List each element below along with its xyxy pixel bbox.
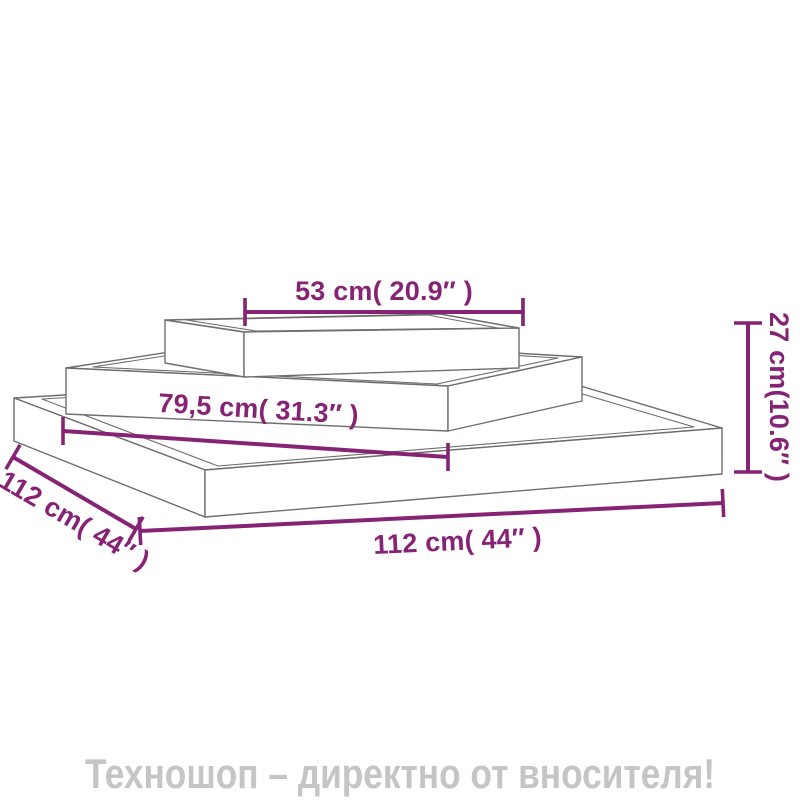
footer-watermark: Техношоп – директно от вносителя! [85,750,715,797]
label-top-width: 53 cm( 20.9″ ) [295,276,473,306]
label-bottom-width: 112 cm( 44″ ) [373,522,543,560]
planter-dimension-diagram: 53 cm( 20.9″ ) 79,5 cm( 31.3″ ) 112 cm( … [0,0,800,800]
product-image: 53 cm( 20.9″ ) 79,5 cm( 31.3″ ) 112 cm( … [0,0,800,800]
dim-right-height [734,323,762,472]
tier-top-front-right-face [244,328,519,377]
planter-sketch [14,314,722,517]
label-right-height: 27 cm(10.6″ ) [764,312,794,482]
